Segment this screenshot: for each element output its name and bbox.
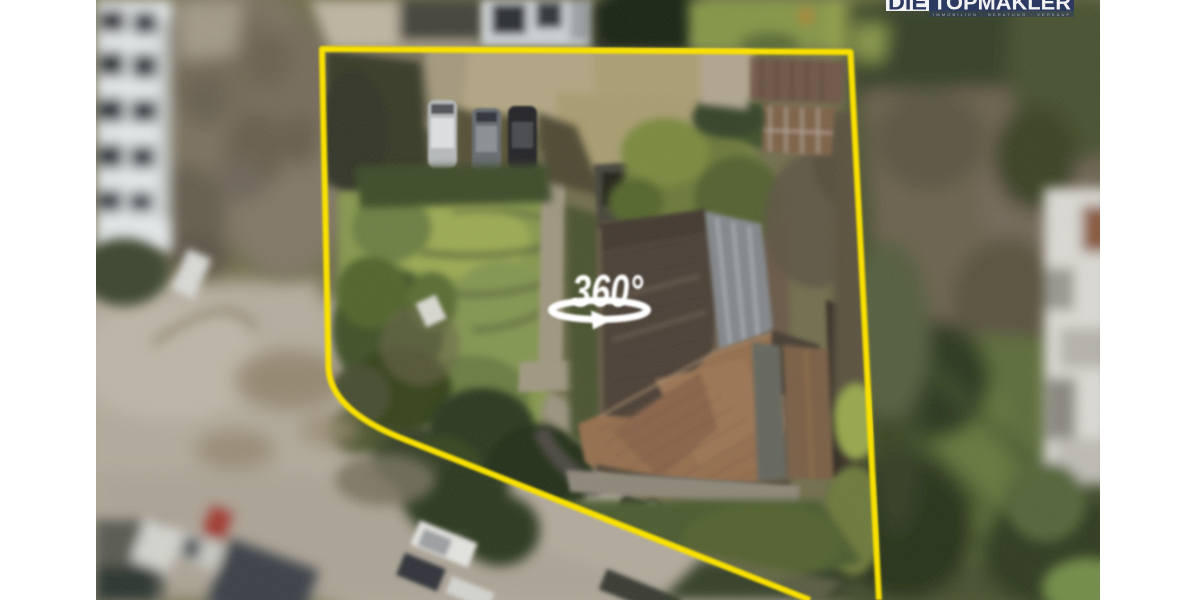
svg-text:360°: 360° — [572, 266, 644, 317]
svg-text:DIE: DIE — [888, 0, 927, 14]
